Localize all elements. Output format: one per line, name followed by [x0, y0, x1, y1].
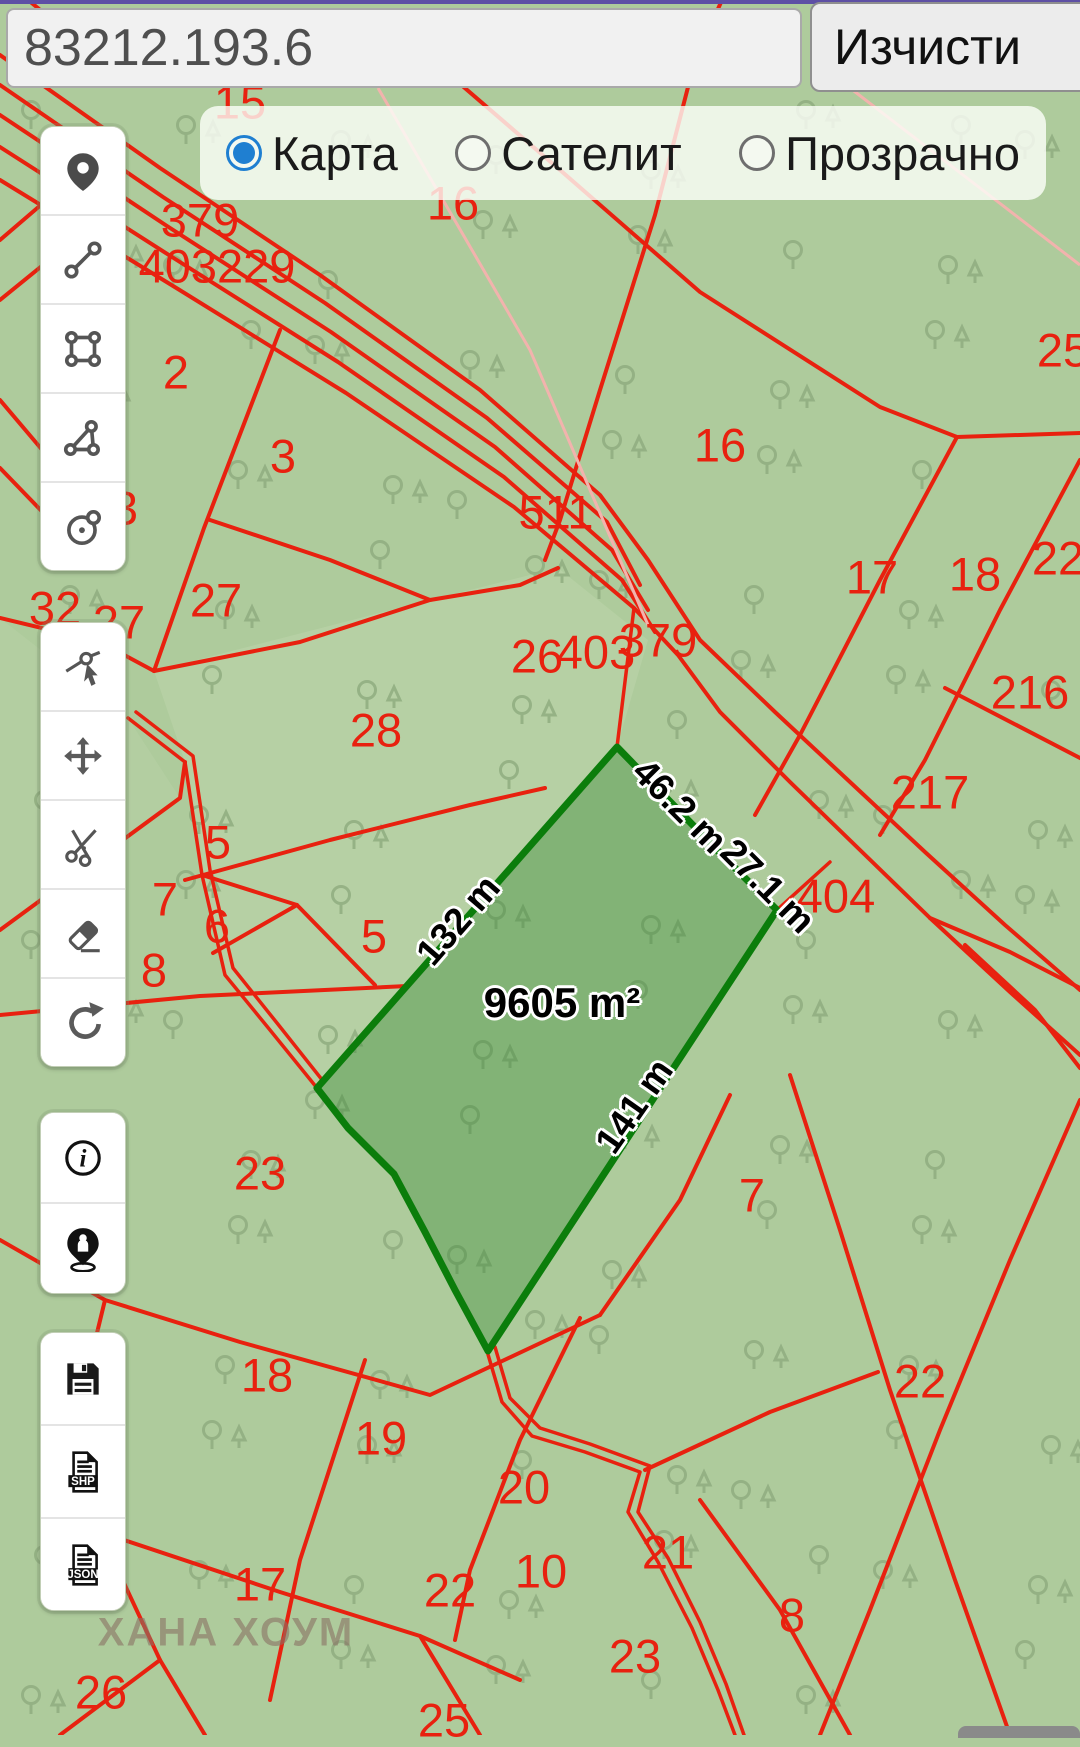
draw-circle-icon — [60, 504, 106, 550]
person-location-button[interactable] — [41, 1202, 125, 1293]
tool-group-3 — [40, 1112, 126, 1294]
info-icon — [60, 1135, 106, 1181]
move-icon — [60, 733, 106, 779]
parcel-number-label: 7 — [739, 1172, 765, 1219]
radio-unselected-icon[interactable] — [455, 135, 491, 171]
parcel-number-label: 18 — [241, 1352, 293, 1399]
move-button[interactable] — [41, 710, 125, 799]
draw-rectangle-button[interactable] — [41, 303, 125, 392]
measure-line-icon — [60, 237, 106, 283]
parcel-number-label: 511 — [519, 489, 594, 536]
draw-circle-button[interactable] — [41, 481, 125, 570]
parcel-number-label: 5 — [361, 913, 387, 960]
save-icon — [60, 1356, 106, 1402]
draw-polygon-button[interactable] — [41, 392, 125, 481]
parcel-number-label: 379 — [161, 197, 239, 244]
person-location-icon — [60, 1226, 106, 1272]
parcel-number-label: 17 — [846, 554, 898, 601]
map-pin-button[interactable] — [41, 127, 125, 214]
parcel-number-label: 17 — [234, 1561, 286, 1608]
info-button[interactable] — [41, 1113, 125, 1202]
layer-option-прозрачно[interactable]: Прозрачно — [739, 126, 1020, 181]
parcel-number-label: 26 — [511, 633, 563, 680]
parcel-number-label: 22 — [1032, 535, 1080, 582]
select-vertex-icon — [60, 644, 106, 690]
map-pin-icon — [60, 148, 106, 194]
parcel-number-label: 6 — [204, 903, 230, 950]
parcel-number-label: 379 — [619, 617, 697, 664]
file-export-icon: JSON — [60, 1542, 106, 1588]
svg-text:SHP: SHP — [71, 1476, 95, 1488]
cut-button[interactable] — [41, 799, 125, 888]
save-button[interactable] — [41, 1333, 125, 1424]
file-export-shp-button[interactable]: SHP — [41, 1424, 125, 1517]
undo-button[interactable] — [41, 977, 125, 1066]
clear-button[interactable]: Изчисти — [810, 2, 1080, 92]
parcel-number-label: 21 — [642, 1529, 694, 1576]
eraser-icon — [60, 911, 106, 957]
cut-icon — [60, 822, 106, 868]
select-vertex-button[interactable] — [41, 623, 125, 710]
tool-group-1 — [40, 126, 126, 571]
undo-icon — [60, 1000, 106, 1046]
parcel-number-label: 216 — [991, 669, 1069, 716]
parcel-number-label: 5 — [205, 819, 231, 866]
parcel-number-label: 22 — [894, 1358, 946, 1405]
parcel-number-label: 217 — [891, 769, 969, 816]
layer-option-label: Карта — [272, 126, 398, 181]
measure-line-button[interactable] — [41, 214, 125, 303]
tool-group-2 — [40, 622, 126, 1067]
layer-option-label: Сателит — [501, 126, 681, 181]
tool-group-4: SHP JSON — [40, 1332, 126, 1611]
radio-unselected-icon[interactable] — [739, 135, 775, 171]
parcel-number-label: 18 — [949, 551, 1001, 598]
parcel-number-label: 23 — [609, 1633, 661, 1680]
map-attribution-chip — [958, 1726, 1080, 1738]
parcel-id-input[interactable] — [6, 8, 802, 88]
layer-option-сателит[interactable]: Сателит — [455, 126, 681, 181]
layer-option-label: Прозрачно — [785, 126, 1020, 181]
parcel-number-label: 25 — [1037, 327, 1080, 374]
parcel-number-label: 3 — [270, 433, 296, 480]
layer-option-карта[interactable]: Карта — [226, 126, 398, 181]
map-watermark: ХАНА ХОУМ — [98, 1611, 354, 1656]
file-export-json-button[interactable]: JSON — [41, 1517, 125, 1610]
parcel-number-label: 10 — [515, 1548, 567, 1595]
eraser-button[interactable] — [41, 888, 125, 977]
svg-text:JSON: JSON — [67, 1569, 98, 1581]
parcel-number-label: 2 — [163, 349, 189, 396]
radio-selected-icon[interactable] — [226, 135, 262, 171]
draw-polygon-icon — [60, 415, 106, 461]
parcel-number-label: 28 — [350, 707, 402, 754]
parcel-number-label: 8 — [779, 1592, 805, 1639]
parcel-number-label: 26 — [75, 1669, 127, 1716]
draw-rectangle-icon — [60, 326, 106, 372]
layer-switcher: Карта Сателит Прозрачно — [200, 106, 1046, 200]
parcel-number-label: 8 — [141, 947, 167, 994]
parcel-number-label: 20 — [498, 1464, 550, 1511]
parcel-number-label: 403229 — [139, 243, 296, 290]
map-canvas[interactable]: i 15379403229162332516511171822322727216… — [0, 0, 1080, 1735]
file-export-icon: SHP — [60, 1449, 106, 1495]
parcel-number-label: 27 — [190, 577, 242, 624]
parcel-number-label: 7 — [152, 876, 178, 923]
parcel-number-label: 19 — [355, 1415, 407, 1462]
parcel-number-label: 23 — [234, 1150, 286, 1197]
parcel-number-label: 22 — [424, 1567, 476, 1614]
parcel-number-label: 16 — [694, 422, 746, 469]
parcel-area-label: 9605 m² — [484, 982, 640, 1024]
parcel-number-label: 25 — [418, 1697, 470, 1744]
